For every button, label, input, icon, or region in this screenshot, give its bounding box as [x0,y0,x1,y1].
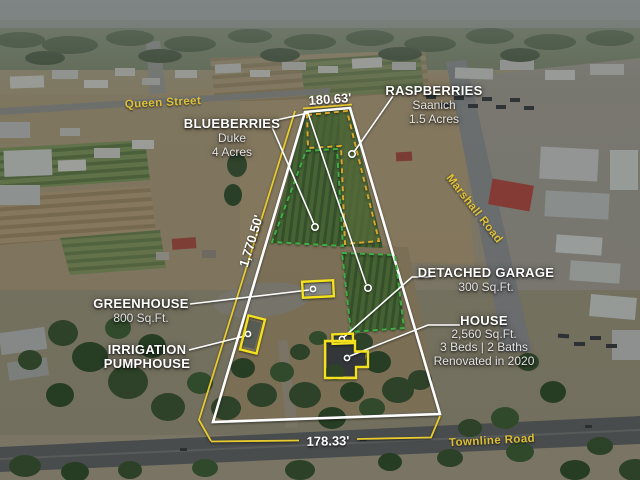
dimension-top-label: 180.63' [308,90,352,108]
irrigation-pumphouse-label: IRRIGATION PUMPHOUSE [104,343,191,371]
house-highlight-outline [325,341,368,378]
aerial-property-photo: Queen Street Marshall Road Townline Road… [0,0,640,480]
raspberries-label: RASPBERRIES Saanich 1.5 Acres [385,84,482,126]
raspberries-leader-dot [349,151,355,157]
raspberries-variety: Saanich [385,98,482,112]
greenhouse-title: GREENHOUSE [93,297,188,311]
greenhouse-label: GREENHOUSE 800 Sq.Ft. [93,297,188,325]
dimension-line-bottom-left-segment [211,441,299,442]
house-label: HOUSE 2,560 Sq.Ft. 3 Beds | 2 Baths Reno… [434,314,535,368]
house-beds-baths: 3 Beds | 2 Baths [434,341,535,355]
greenhouse-leader-dot [310,286,315,291]
house-size: 2,560 Sq.Ft. [434,328,535,342]
house-title: HOUSE [434,314,535,328]
blueberries-label: BLUEBERRIES Duke 4 Acres [184,117,280,159]
blueberries-size: 4 Acres [184,145,280,159]
raspberries-size: 1.5 Acres [385,112,482,126]
dimension-line-bottom-right-segment [357,416,440,439]
dimension-bottom-label: 178.33' [306,433,349,449]
greenhouse-size: 800 Sq.Ft. [93,311,188,325]
blueberries-leader-dot-main [312,224,318,230]
irrigation-title-line2: PUMPHOUSE [104,357,191,371]
blueberries-field-outline-main [272,149,343,246]
highlight-boxes [240,280,368,378]
garage-title: DETACHED GARAGE [418,266,554,280]
detached-garage-label: DETACHED GARAGE 300 Sq.Ft. [418,266,554,294]
house-renovated: Renovated in 2020 [434,355,535,369]
house-leader-dot [344,355,349,360]
pumphouse-leader-dot [245,331,250,336]
raspberries-title: RASPBERRIES [385,84,482,98]
greenhouse-highlight-box [302,280,334,298]
garage-highlight-box [332,334,353,344]
garage-size: 300 Sq.Ft. [418,280,554,294]
annotation-overlay [0,0,640,480]
blueberries-title: BLUEBERRIES [184,117,280,131]
dimension-line-left [199,111,295,441]
irrigation-title-line1: IRRIGATION [104,343,191,357]
blueberries-leader-dot-lower [365,285,371,291]
blueberries-variety: Duke [184,131,280,145]
